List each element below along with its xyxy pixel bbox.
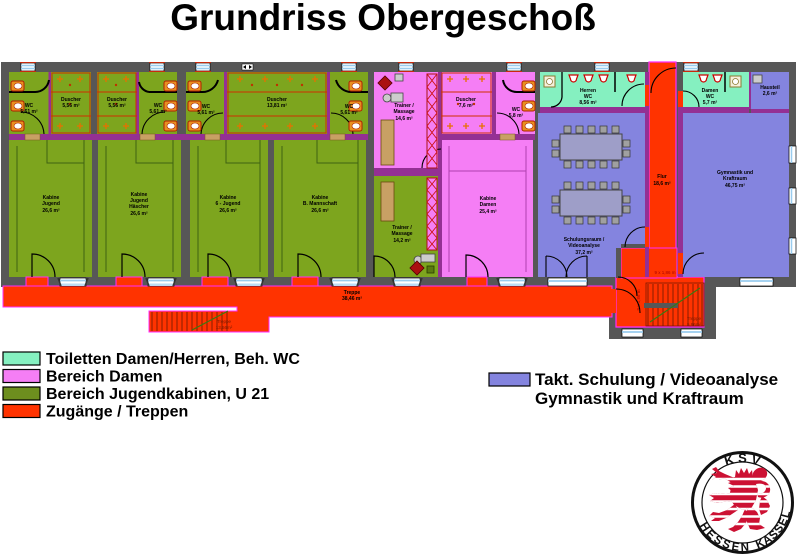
svg-text:5,96m²: 5,96m² [687,322,702,327]
svg-text:Zugänge / Treppen: Zugänge / Treppen [46,404,188,421]
svg-text:46,75 m²: 46,75 m² [725,183,745,189]
svg-text:Toiletten Damen/Herren, Beh. W: Toiletten Damen/Herren, Beh. WC [46,351,300,368]
svg-text:25,4 m²: 25,4 m² [479,209,497,215]
svg-text:18,6 m²: 18,6 m² [653,181,671,187]
svg-text:13,66m²: 13,66m² [216,325,233,330]
svg-text:14,6 m²: 14,6 m² [395,116,413,122]
svg-text:5,61 m²: 5,61 m² [20,109,38,115]
svg-text:5,61 m²: 5,61 m² [197,110,215,116]
svg-text:5,7 m²: 5,7 m² [703,100,718,106]
svg-text:8,56 m²: 8,56 m² [579,100,597,106]
svg-text:26,6 m²: 26,6 m² [130,211,148,217]
svg-text:5,8 m²: 5,8 m² [509,113,524,119]
svg-text:5,61 m²: 5,61 m² [149,109,167,115]
svg-text:Damen: Damen [480,202,497,208]
svg-text:Massage: Massage [393,109,414,115]
svg-text:Videoanalyse: Videoanalyse [568,243,600,249]
svg-text:Jugend: Jugend [42,201,60,207]
svg-text:Bereich Damen: Bereich Damen [46,369,163,386]
svg-text:Grundriss Obergeschoß: Grundriss Obergeschoß [170,0,596,38]
svg-text:26,6 m²: 26,6 m² [311,208,329,214]
svg-text:Treppe: Treppe [687,316,702,321]
svg-text:2,6 m²: 2,6 m² [763,91,778,97]
svg-text:Flur: Flur [657,174,666,180]
svg-text:Takt. Schulung / Videoanalyse: Takt. Schulung / Videoanalyse [535,370,778,389]
svg-text:Kraftraum: Kraftraum [723,176,747,182]
svg-text:5,61 m²: 5,61 m² [340,110,358,116]
svg-text:Massage: Massage [391,231,412,237]
svg-text:Häscher: Häscher [129,204,149,210]
svg-text:B. Mannschaft: B. Mannschaft [303,201,338,207]
svg-text:13,81 m²: 13,81 m² [267,103,287,109]
svg-text:Treppe: Treppe [217,319,232,324]
svg-text:Gymnastik und Kraftraum: Gymnastik und Kraftraum [535,389,744,408]
svg-text:14,2 m²: 14,2 m² [393,238,411,244]
svg-text:5,56 m²: 5,56 m² [108,103,126,109]
svg-text:9 x 1,86 m: 9 x 1,86 m [654,270,675,275]
svg-text:38,46 m²: 38,46 m² [342,296,362,302]
svg-text:7,6 m²: 7,6 m² [459,103,474,109]
svg-text:26,6 m²: 26,6 m² [219,208,237,214]
svg-text:37,2 m²: 37,2 m² [575,250,593,256]
svg-text:N: N [740,542,749,554]
svg-text:Bereich Jugendkabinen, U 21: Bereich Jugendkabinen, U 21 [46,386,269,403]
svg-text:S: S [738,451,747,466]
svg-text:6 - Jugend: 6 - Jugend [215,201,240,207]
svg-text:26,6 m²: 26,6 m² [42,208,60,214]
svg-text:5,56 m²: 5,56 m² [62,103,80,109]
